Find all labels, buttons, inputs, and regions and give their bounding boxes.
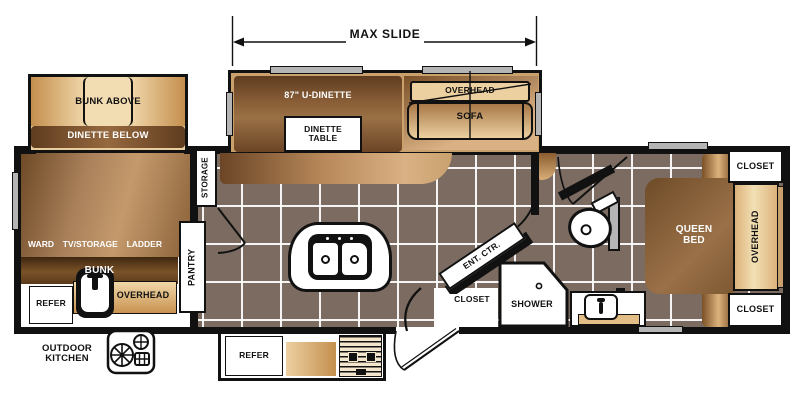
dim-arrow-left bbox=[233, 38, 244, 47]
queen-bed-label: QUEEN BED bbox=[652, 220, 736, 250]
ward-label: WARD bbox=[28, 239, 54, 251]
sink-dot-3 bbox=[350, 237, 353, 240]
dinette-below-label: DINETTE BELOW bbox=[31, 130, 185, 143]
tv-storage-label: TV/STORAGE bbox=[63, 239, 118, 251]
bath-wall-upper bbox=[531, 153, 539, 215]
toilet-drain bbox=[580, 223, 593, 236]
u-dinette-label: 87" U-DINETTE bbox=[234, 89, 402, 102]
outdoor-kitchen-line2: KITCHEN bbox=[45, 354, 89, 364]
shower-label: SHOWER bbox=[500, 299, 564, 311]
bottom-wall-window bbox=[638, 326, 683, 333]
left-wall-window bbox=[12, 172, 19, 230]
sink-dot-1 bbox=[326, 237, 329, 240]
range-icon bbox=[339, 335, 382, 377]
bunk-above-label: BUNK ABOVE bbox=[31, 96, 185, 109]
right-wall bbox=[783, 146, 790, 334]
kitchen-refer-label: REFER bbox=[225, 349, 283, 362]
bunkroom-label-row: WARD TV/STORAGE LADDER bbox=[22, 239, 180, 251]
bedroom-closet-bottom-label: CLOSET bbox=[728, 303, 783, 316]
entry-closet-label: CLOSET bbox=[448, 294, 496, 306]
range-knob-right bbox=[366, 352, 376, 362]
storage-label: STORAGE bbox=[195, 151, 217, 205]
ladder-label: LADDER bbox=[127, 239, 162, 251]
sofa-overhead-label: OVERHEAD bbox=[410, 84, 530, 97]
bedroom-closet-top-label: CLOSET bbox=[728, 160, 783, 173]
island-double-sink-icon bbox=[308, 234, 372, 280]
max-slide-label: MAX SLIDE bbox=[347, 27, 423, 43]
galley-sink-faucet bbox=[92, 276, 98, 290]
queen-bed-line2: BED bbox=[683, 235, 705, 246]
sink-hole-right bbox=[350, 255, 359, 264]
dim-arrow-right bbox=[525, 38, 536, 47]
sofa-label: SOFA bbox=[407, 111, 533, 124]
main-slide-side-window-left bbox=[226, 92, 233, 136]
pantry-label: PANTRY bbox=[179, 224, 206, 310]
main-slide-window-right bbox=[422, 66, 513, 74]
vanity-sink-icon bbox=[584, 294, 618, 320]
range-knob-left bbox=[348, 352, 358, 362]
main-slide-side-window-right bbox=[535, 92, 542, 136]
entry-door-swing bbox=[394, 329, 459, 371]
kitchen-slide-counter bbox=[286, 342, 336, 376]
kitchen-counter bbox=[220, 153, 452, 184]
dinette-table-line2: TABLE bbox=[309, 134, 338, 143]
range-vent bbox=[356, 369, 366, 375]
kitchen-island bbox=[288, 222, 392, 292]
bunkroom-refer-label: REFER bbox=[29, 298, 73, 310]
galley-overhead-label: OVERHEAD bbox=[108, 289, 178, 303]
bedroom-overhead-label: OVERHEAD bbox=[733, 186, 779, 288]
bottom-wall-right bbox=[459, 327, 790, 334]
bunk-label: BUNK bbox=[21, 263, 178, 277]
vanity-faucet-dot bbox=[597, 298, 605, 302]
queen-bed-line1: QUEEN bbox=[676, 224, 713, 235]
bedroom-top-window bbox=[648, 142, 708, 150]
sink-hole-left bbox=[321, 255, 330, 264]
main-slide-window-left bbox=[270, 66, 363, 74]
sink-dot-2 bbox=[338, 237, 341, 240]
dinette-table-label: DINETTE TABLE bbox=[284, 119, 362, 149]
floorplan-canvas: BUNK ABOVE DINETTE BELOW 87" U-DINETTE D… bbox=[0, 0, 800, 400]
outdoor-stove-icon bbox=[106, 329, 156, 375]
vanity-faucet bbox=[599, 302, 603, 314]
outdoor-kitchen-label: OUTDOOR KITCHEN bbox=[30, 341, 104, 367]
